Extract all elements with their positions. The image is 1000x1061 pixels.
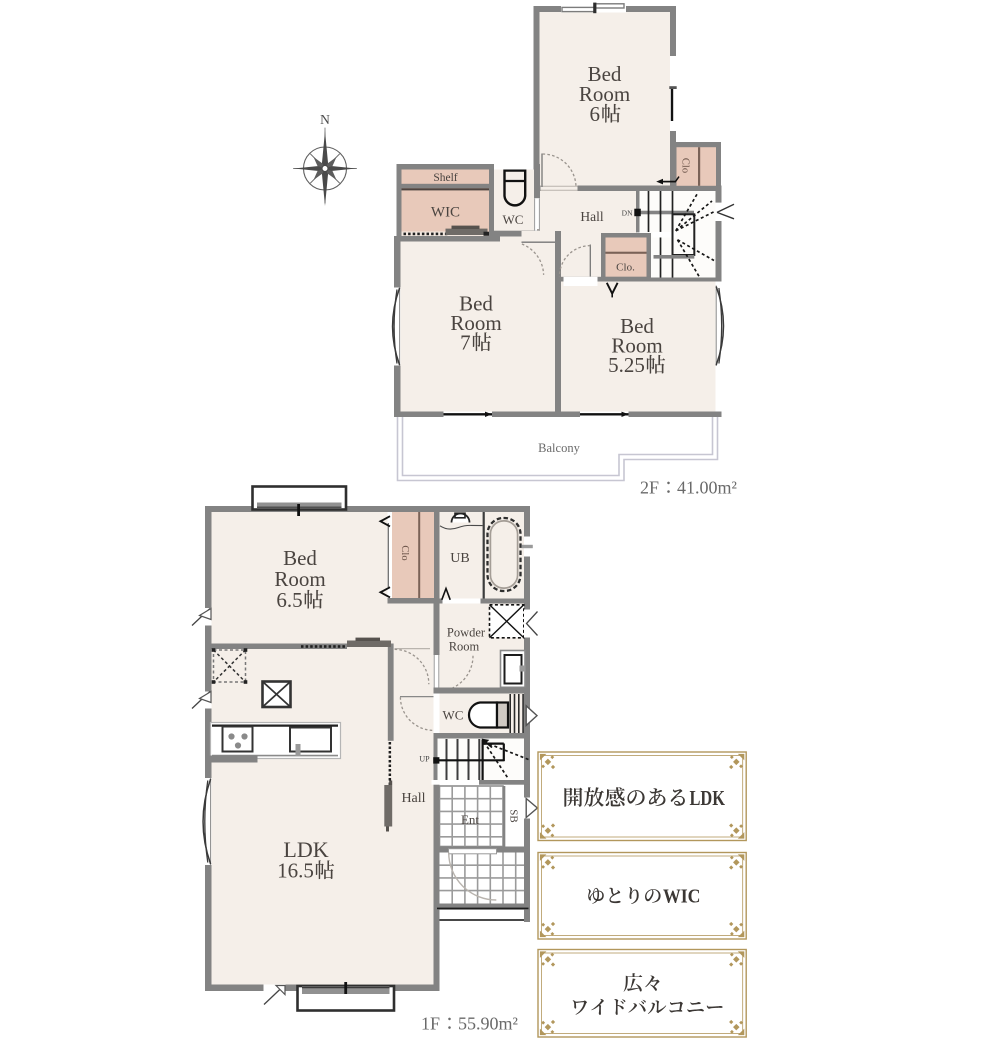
svg-text:WC: WC (443, 708, 464, 723)
svg-text:UB: UB (450, 551, 469, 566)
svg-text:SB: SB (508, 809, 520, 822)
svg-text:Clo.: Clo. (616, 262, 635, 274)
svg-text:Clo: Clo (680, 158, 691, 173)
svg-text:DN: DN (622, 209, 633, 218)
svg-text:WIC: WIC (663, 886, 701, 908)
svg-text:2F: 2F (640, 478, 659, 498)
svg-text:16.5: 16.5 (277, 859, 314, 883)
svg-text:6.5: 6.5 (276, 588, 302, 612)
svg-text:Room: Room (449, 640, 480, 654)
svg-text:1F: 1F (421, 1014, 440, 1034)
svg-text:Ent: Ent (461, 812, 479, 827)
svg-text:Hall: Hall (401, 791, 425, 806)
svg-text:N: N (320, 112, 330, 127)
svg-text:Hall: Hall (580, 209, 603, 224)
svg-text:Shelf: Shelf (433, 172, 457, 184)
svg-text:Room: Room (450, 311, 501, 335)
svg-text:Room: Room (579, 82, 630, 106)
svg-text:7: 7 (460, 331, 471, 355)
svg-text:WC: WC (503, 212, 524, 227)
svg-text:Clo: Clo (399, 545, 410, 560)
svg-text:6: 6 (590, 102, 601, 126)
svg-text:UP: UP (419, 755, 430, 764)
svg-text:41.00m²: 41.00m² (677, 478, 737, 498)
svg-text:Powder: Powder (447, 626, 486, 640)
svg-text:WIC: WIC (431, 205, 460, 221)
svg-text:Balcony: Balcony (538, 441, 580, 455)
svg-text:55.90m²: 55.90m² (458, 1014, 518, 1034)
svg-text:LDK: LDK (690, 786, 726, 810)
svg-text:5.25: 5.25 (608, 353, 645, 377)
